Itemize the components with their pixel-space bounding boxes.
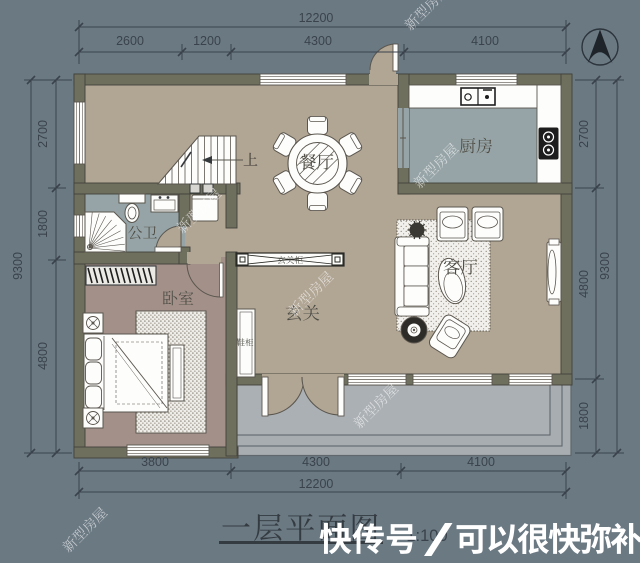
svg-text:4800: 4800 [577, 270, 591, 298]
svg-text:4300: 4300 [302, 455, 330, 469]
svg-text:2700: 2700 [36, 120, 50, 148]
svg-text:2700: 2700 [577, 120, 591, 148]
svg-text:4100: 4100 [471, 34, 499, 48]
svg-text:4100: 4100 [467, 455, 495, 469]
svg-text:9300: 9300 [598, 252, 612, 280]
svg-text:12200: 12200 [299, 11, 334, 25]
svg-text:4300: 4300 [304, 34, 332, 48]
svg-text:4800: 4800 [36, 342, 50, 370]
svg-text:9300: 9300 [11, 252, 25, 280]
svg-text:2600: 2600 [116, 34, 144, 48]
svg-text:1800: 1800 [36, 210, 50, 238]
svg-text:3800: 3800 [141, 455, 169, 469]
svg-text:1800: 1800 [577, 402, 591, 430]
svg-text:1200: 1200 [193, 34, 221, 48]
svg-text:12200: 12200 [299, 477, 334, 491]
